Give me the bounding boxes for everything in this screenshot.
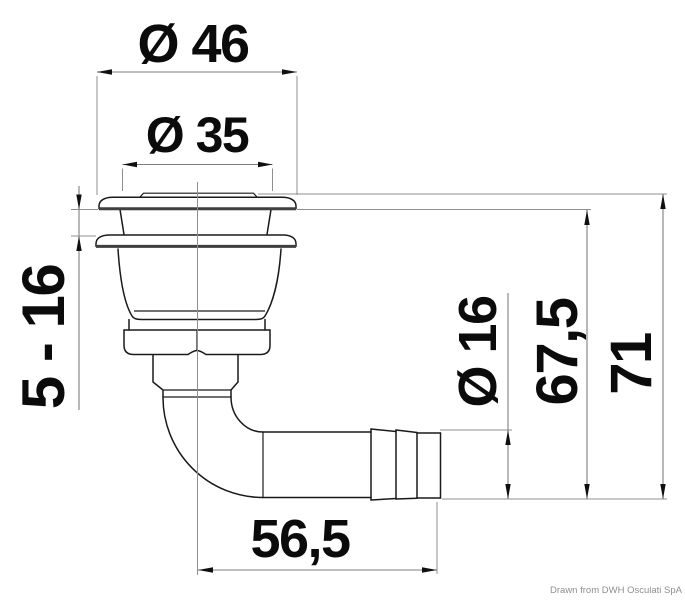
arrowhead: [505, 484, 510, 499]
dim-hose-barb-diameter: Ø 16: [440, 293, 512, 499]
dim-label-height-under-flange: 67,5: [525, 298, 590, 405]
neck: [120, 210, 271, 235]
dim-label-overall-height: 71: [599, 333, 664, 395]
dim-label-cap-diameter: Ø 35: [146, 107, 249, 163]
arrowhead: [282, 69, 297, 74]
gasket-flange: [96, 235, 296, 246]
technical-drawing: Ø 46 Ø 35 5 - 16 56,5: [0, 0, 685, 600]
arrowhead: [660, 194, 665, 209]
arrowhead: [505, 430, 510, 445]
arrowhead: [97, 69, 112, 74]
arrowhead: [584, 484, 589, 499]
dimensions: Ø 46 Ø 35 5 - 16 56,5: [10, 14, 667, 574]
dim-label-hose-barb-diameter: Ø 16: [448, 296, 508, 408]
arrowhead: [198, 567, 213, 572]
arrowhead: [584, 210, 589, 225]
arrowhead: [660, 484, 665, 499]
drawing-canvas: Ø 46 Ø 35 5 - 16 56,5: [0, 0, 685, 600]
dim-label-panel-range: 5 - 16: [10, 265, 77, 410]
stem: [153, 355, 238, 397]
dim-flange-diameter: Ø 46: [97, 14, 297, 195]
arrowhead: [76, 195, 81, 210]
arrowhead: [422, 567, 437, 572]
credit-text: Drawn from DWH Osculati SpA: [550, 585, 683, 596]
elbow-tube: [163, 397, 371, 498]
dim-elbow-length: 56,5: [198, 502, 437, 574]
hose-barb: [371, 429, 441, 500]
arrowhead: [76, 236, 81, 251]
dim-label-flange-diameter: Ø 46: [137, 14, 249, 74]
top-cap-lip: [140, 193, 257, 197]
arrowhead: [123, 162, 138, 167]
arrowhead: [258, 162, 273, 167]
dim-label-elbow-length: 56,5: [250, 509, 350, 569]
cup-body: [118, 249, 281, 320]
dim-height-under-flange: 67,5: [297, 210, 591, 500]
dim-panel-range: 5 - 16: [10, 186, 98, 410]
dim-cap-diameter: Ø 35: [123, 107, 273, 191]
